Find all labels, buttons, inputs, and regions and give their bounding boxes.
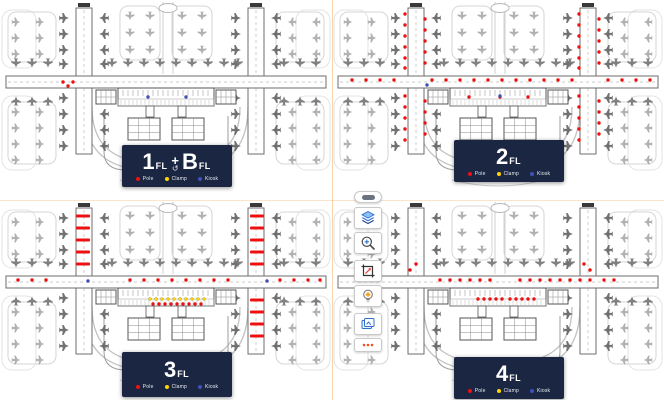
floor-number: 3 bbox=[164, 359, 176, 381]
ellipsis-icon bbox=[360, 341, 376, 349]
clamp-dot-icon bbox=[165, 177, 169, 181]
legend-label: Pole bbox=[143, 384, 154, 390]
floor-suffix: FL bbox=[156, 162, 168, 171]
clamp-dot-icon bbox=[165, 385, 169, 389]
layers-icon bbox=[360, 210, 376, 226]
floor-suffix: FL bbox=[509, 374, 521, 383]
floor-label-text: 4FL bbox=[496, 363, 522, 385]
legend-label: Clamp bbox=[172, 176, 187, 182]
floor-label-text: 3FL bbox=[164, 359, 190, 381]
legend-item-kiosk: Kiosk bbox=[530, 171, 550, 177]
floor-label-2fl[interactable]: 2FL PoleClampKiosk bbox=[454, 140, 564, 182]
legend-label: Kiosk bbox=[205, 176, 218, 182]
floor-label-1fl-bfl[interactable]: 1FL +↺ BFL PoleClampKiosk bbox=[122, 145, 232, 187]
floor-number: 4 bbox=[496, 363, 508, 385]
legend-item-kiosk: Kiosk bbox=[198, 176, 218, 182]
kiosk-dot-icon bbox=[530, 172, 534, 176]
image-frames-icon bbox=[360, 316, 376, 332]
highlight-button[interactable] bbox=[354, 285, 382, 307]
legend-label: Pole bbox=[475, 388, 486, 394]
floor-label-3fl[interactable]: 3FL PoleClampKiosk bbox=[122, 352, 232, 397]
quadrant-1fl-bfl: 1FL +↺ BFL PoleClampKiosk bbox=[0, 0, 332, 200]
legend-label: Pole bbox=[143, 176, 154, 182]
measure-button[interactable] bbox=[354, 260, 382, 282]
legend-item-pole: Pole bbox=[468, 388, 486, 394]
quadrant-3fl: 3FL PoleClampKiosk bbox=[0, 200, 332, 400]
floor-label-4fl[interactable]: 4FL PoleClampKiosk bbox=[454, 357, 564, 399]
legend: PoleClampKiosk bbox=[468, 388, 551, 394]
legend-label: Pole bbox=[475, 171, 486, 177]
legend-item-pole: Pole bbox=[136, 176, 154, 182]
more-button[interactable] bbox=[354, 338, 382, 352]
legend-label: Clamp bbox=[504, 171, 519, 177]
clamp-dot-icon bbox=[497, 172, 501, 176]
drag-handle-icon bbox=[362, 195, 375, 200]
pole-dot-icon bbox=[468, 389, 472, 393]
legend-label: Clamp bbox=[504, 388, 519, 394]
quadrant-2fl: 2FL PoleClampKiosk bbox=[332, 0, 664, 200]
map-toolbar bbox=[352, 191, 384, 355]
zoom-in-button[interactable] bbox=[354, 232, 382, 254]
legend: PoleClampKiosk bbox=[136, 384, 219, 390]
legend: PoleClampKiosk bbox=[136, 176, 219, 182]
measure-crop-icon bbox=[360, 263, 376, 279]
gallery-button[interactable] bbox=[354, 313, 382, 335]
pole-dot-icon bbox=[468, 172, 472, 176]
legend-item-kiosk: Kiosk bbox=[198, 384, 218, 390]
pole-dot-icon bbox=[136, 177, 140, 181]
legend-item-clamp: Clamp bbox=[497, 388, 519, 394]
floor-label-text: 1FL +↺ BFL bbox=[142, 151, 211, 173]
kiosk-dot-icon bbox=[530, 389, 534, 393]
legend-item-pole: Pole bbox=[468, 171, 486, 177]
legend-label: Clamp bbox=[172, 384, 187, 390]
kiosk-dot-icon bbox=[198, 177, 202, 181]
pole-dot-icon bbox=[136, 385, 140, 389]
kiosk-dot-icon bbox=[198, 385, 202, 389]
floor-number: 1 bbox=[142, 151, 154, 173]
layers-button[interactable] bbox=[354, 207, 382, 229]
floor-suffix-secondary: FL bbox=[199, 162, 211, 171]
legend-item-pole: Pole bbox=[136, 384, 154, 390]
legend: PoleClampKiosk bbox=[468, 171, 551, 177]
collapse-handle[interactable] bbox=[354, 191, 382, 203]
clamp-dot-icon bbox=[497, 389, 501, 393]
floor-number-secondary: B bbox=[182, 151, 198, 173]
swap-floor-icon[interactable]: ↺ bbox=[172, 166, 179, 172]
floor-suffix: FL bbox=[509, 157, 521, 166]
legend-item-clamp: Clamp bbox=[497, 171, 519, 177]
legend-item-clamp: Clamp bbox=[165, 384, 187, 390]
legend-item-kiosk: Kiosk bbox=[530, 388, 550, 394]
legend-label: Kiosk bbox=[537, 171, 550, 177]
legend-label: Kiosk bbox=[537, 388, 550, 394]
quadrant-divider-horizontal bbox=[0, 200, 664, 201]
lightbulb-icon bbox=[360, 288, 376, 304]
zoom-in-icon bbox=[360, 235, 376, 251]
legend-label: Kiosk bbox=[205, 384, 218, 390]
floor-label-text: 2FL bbox=[496, 146, 522, 168]
floor-suffix: FL bbox=[177, 370, 189, 379]
floor-number: 2 bbox=[496, 146, 508, 168]
legend-item-clamp: Clamp bbox=[165, 176, 187, 182]
